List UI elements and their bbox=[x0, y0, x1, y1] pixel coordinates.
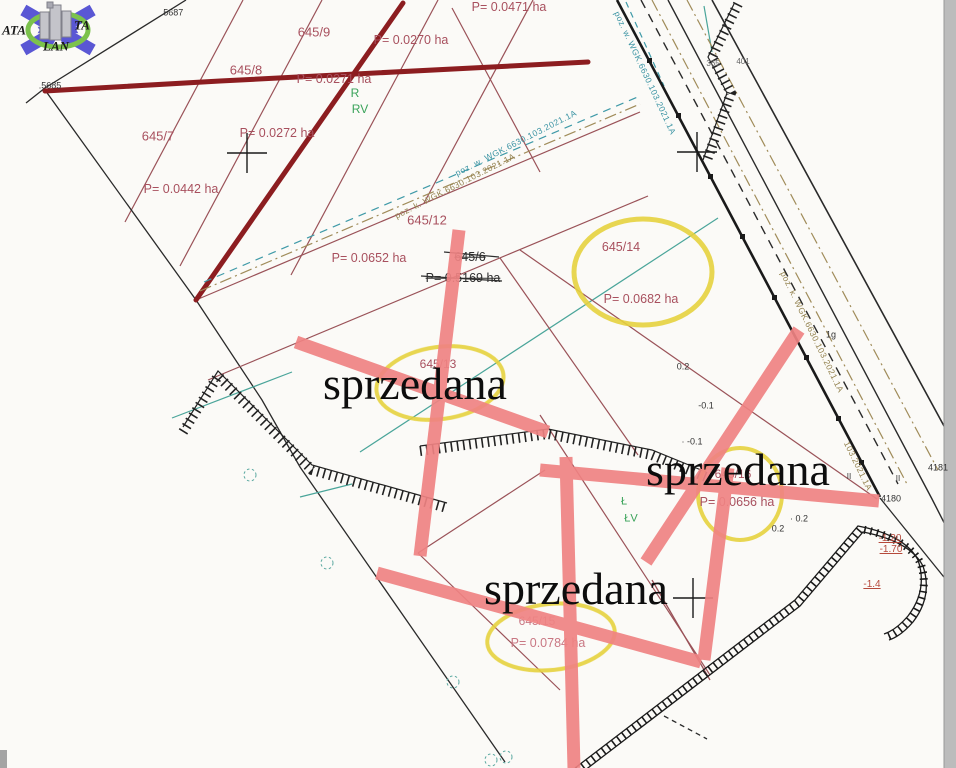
cadastral-map: ATATALAN.5687.5685645/9P= 0.0270 ha645/8… bbox=[0, 0, 956, 768]
sold-cross-bars bbox=[296, 230, 879, 768]
sold-cross-overlay bbox=[0, 0, 956, 768]
